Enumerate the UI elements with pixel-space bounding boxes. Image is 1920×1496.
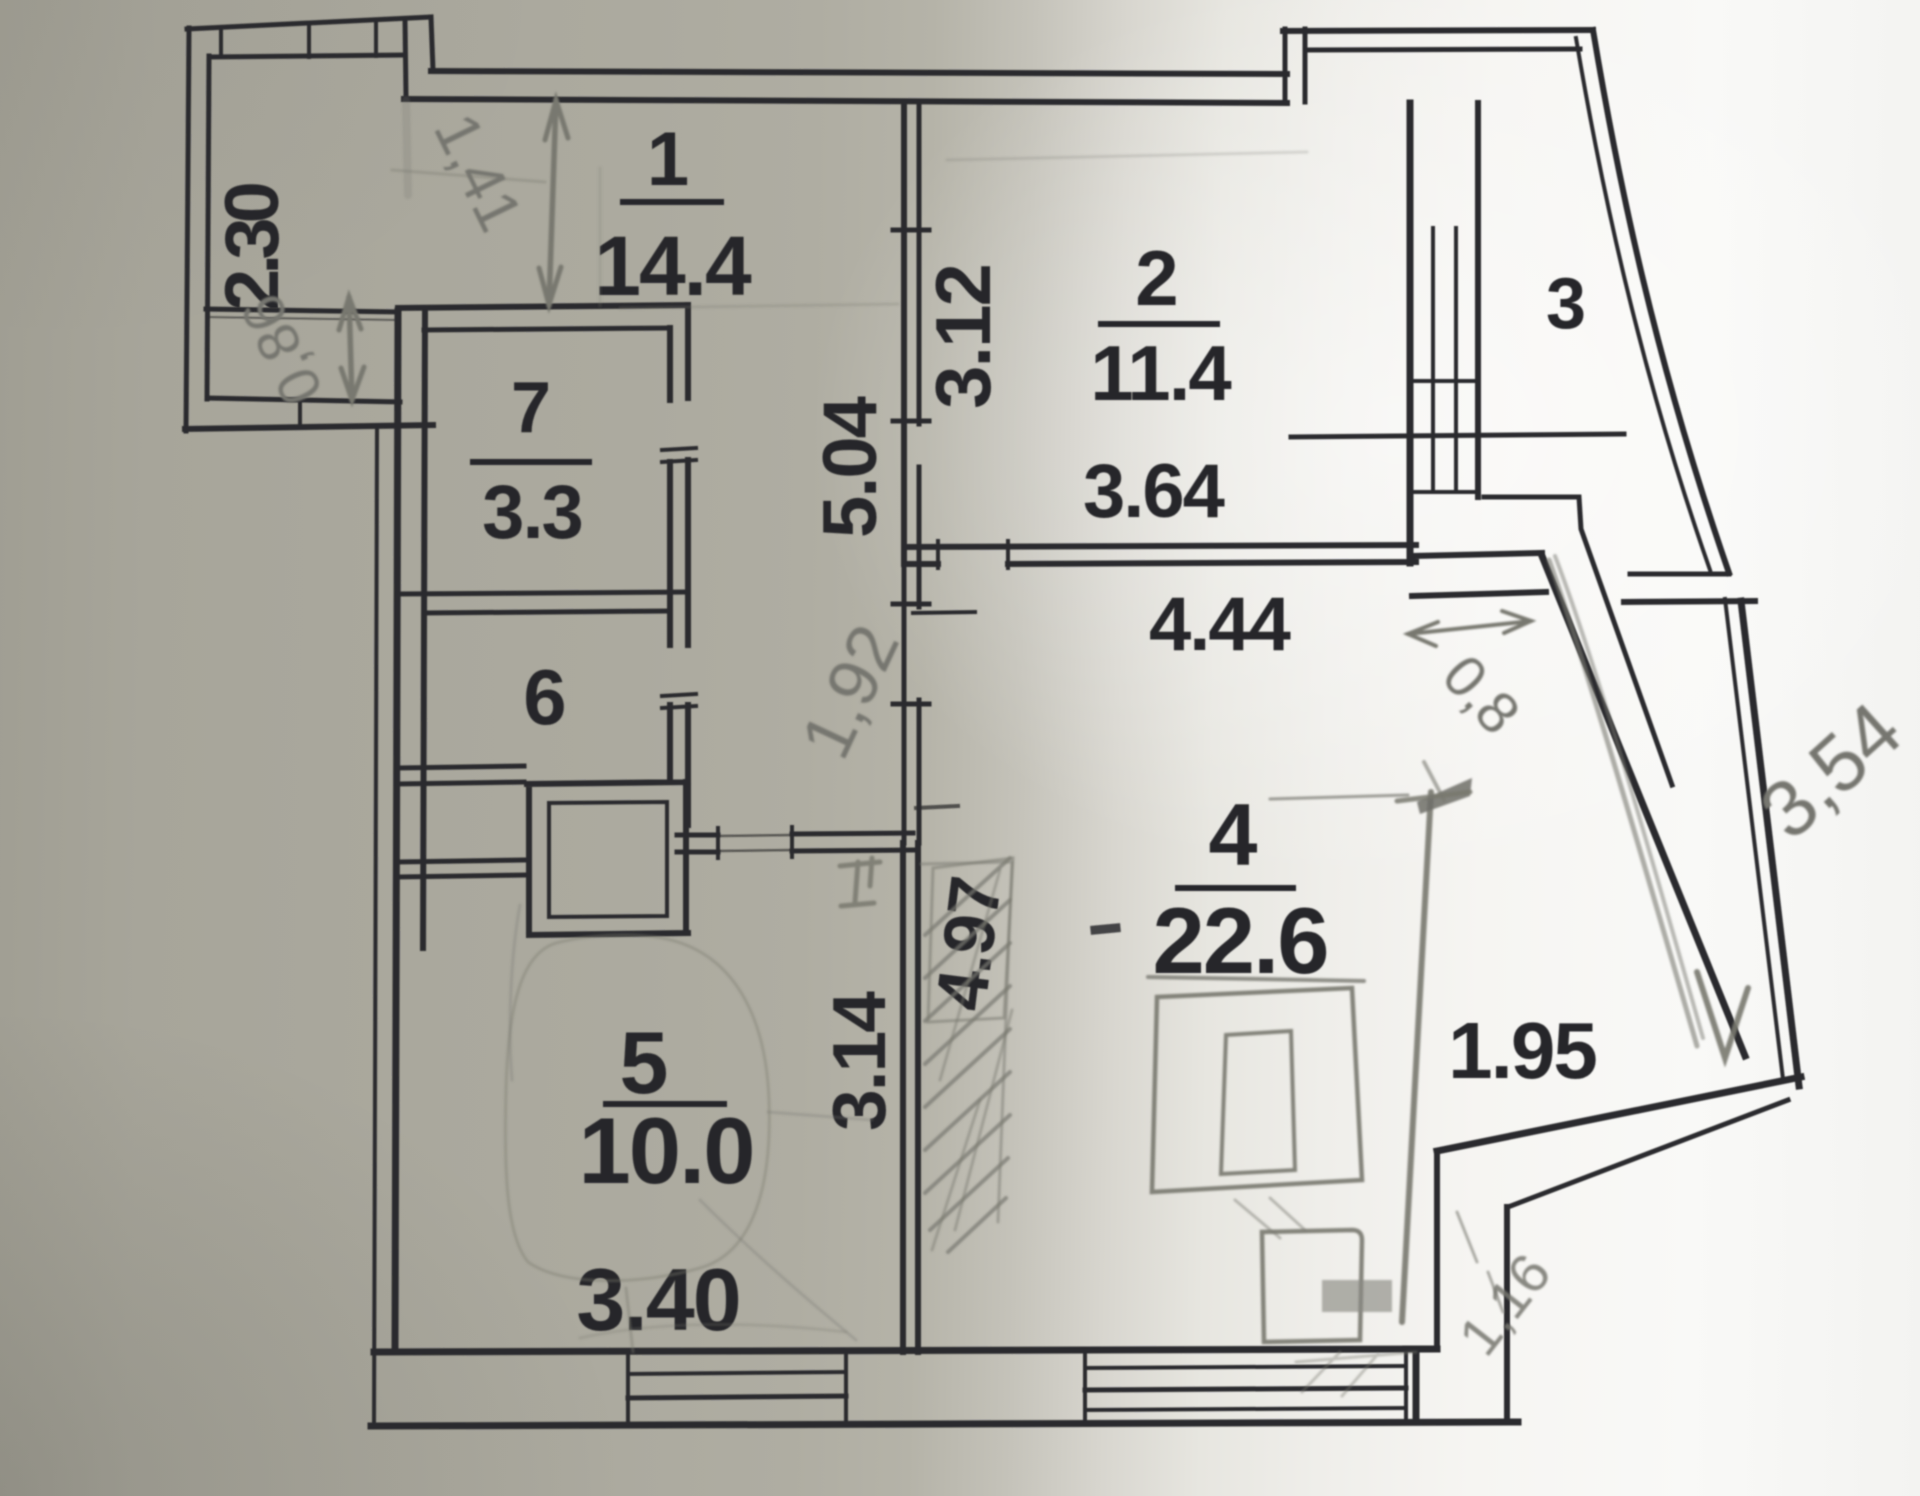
svg-text:4: 4	[1209, 785, 1258, 884]
svg-text:14.4: 14.4	[594, 219, 752, 313]
svg-text:3.14: 3.14	[817, 991, 901, 1131]
svg-text:4.44: 4.44	[1149, 582, 1291, 667]
svg-text:11.4: 11.4	[1090, 329, 1231, 417]
svg-text:3.12: 3.12	[919, 265, 1007, 409]
svg-text:1,16: 1,16	[1446, 1242, 1563, 1367]
svg-text:1: 1	[647, 117, 689, 202]
svg-text:2: 2	[1135, 234, 1178, 322]
svg-text:0,8: 0,8	[1430, 643, 1532, 746]
svg-text:3: 3	[1546, 264, 1586, 344]
svg-text:3.3: 3.3	[482, 470, 582, 555]
svg-text:1.95: 1.95	[1448, 1006, 1596, 1095]
svg-text:5.04: 5.04	[808, 396, 893, 538]
svg-text:6: 6	[523, 653, 566, 741]
svg-text:10.0: 10.0	[579, 1098, 754, 1203]
svg-text:3.64: 3.64	[1083, 449, 1225, 534]
svg-text:1,92: 1,92	[786, 613, 914, 769]
svg-text:7: 7	[511, 368, 551, 448]
